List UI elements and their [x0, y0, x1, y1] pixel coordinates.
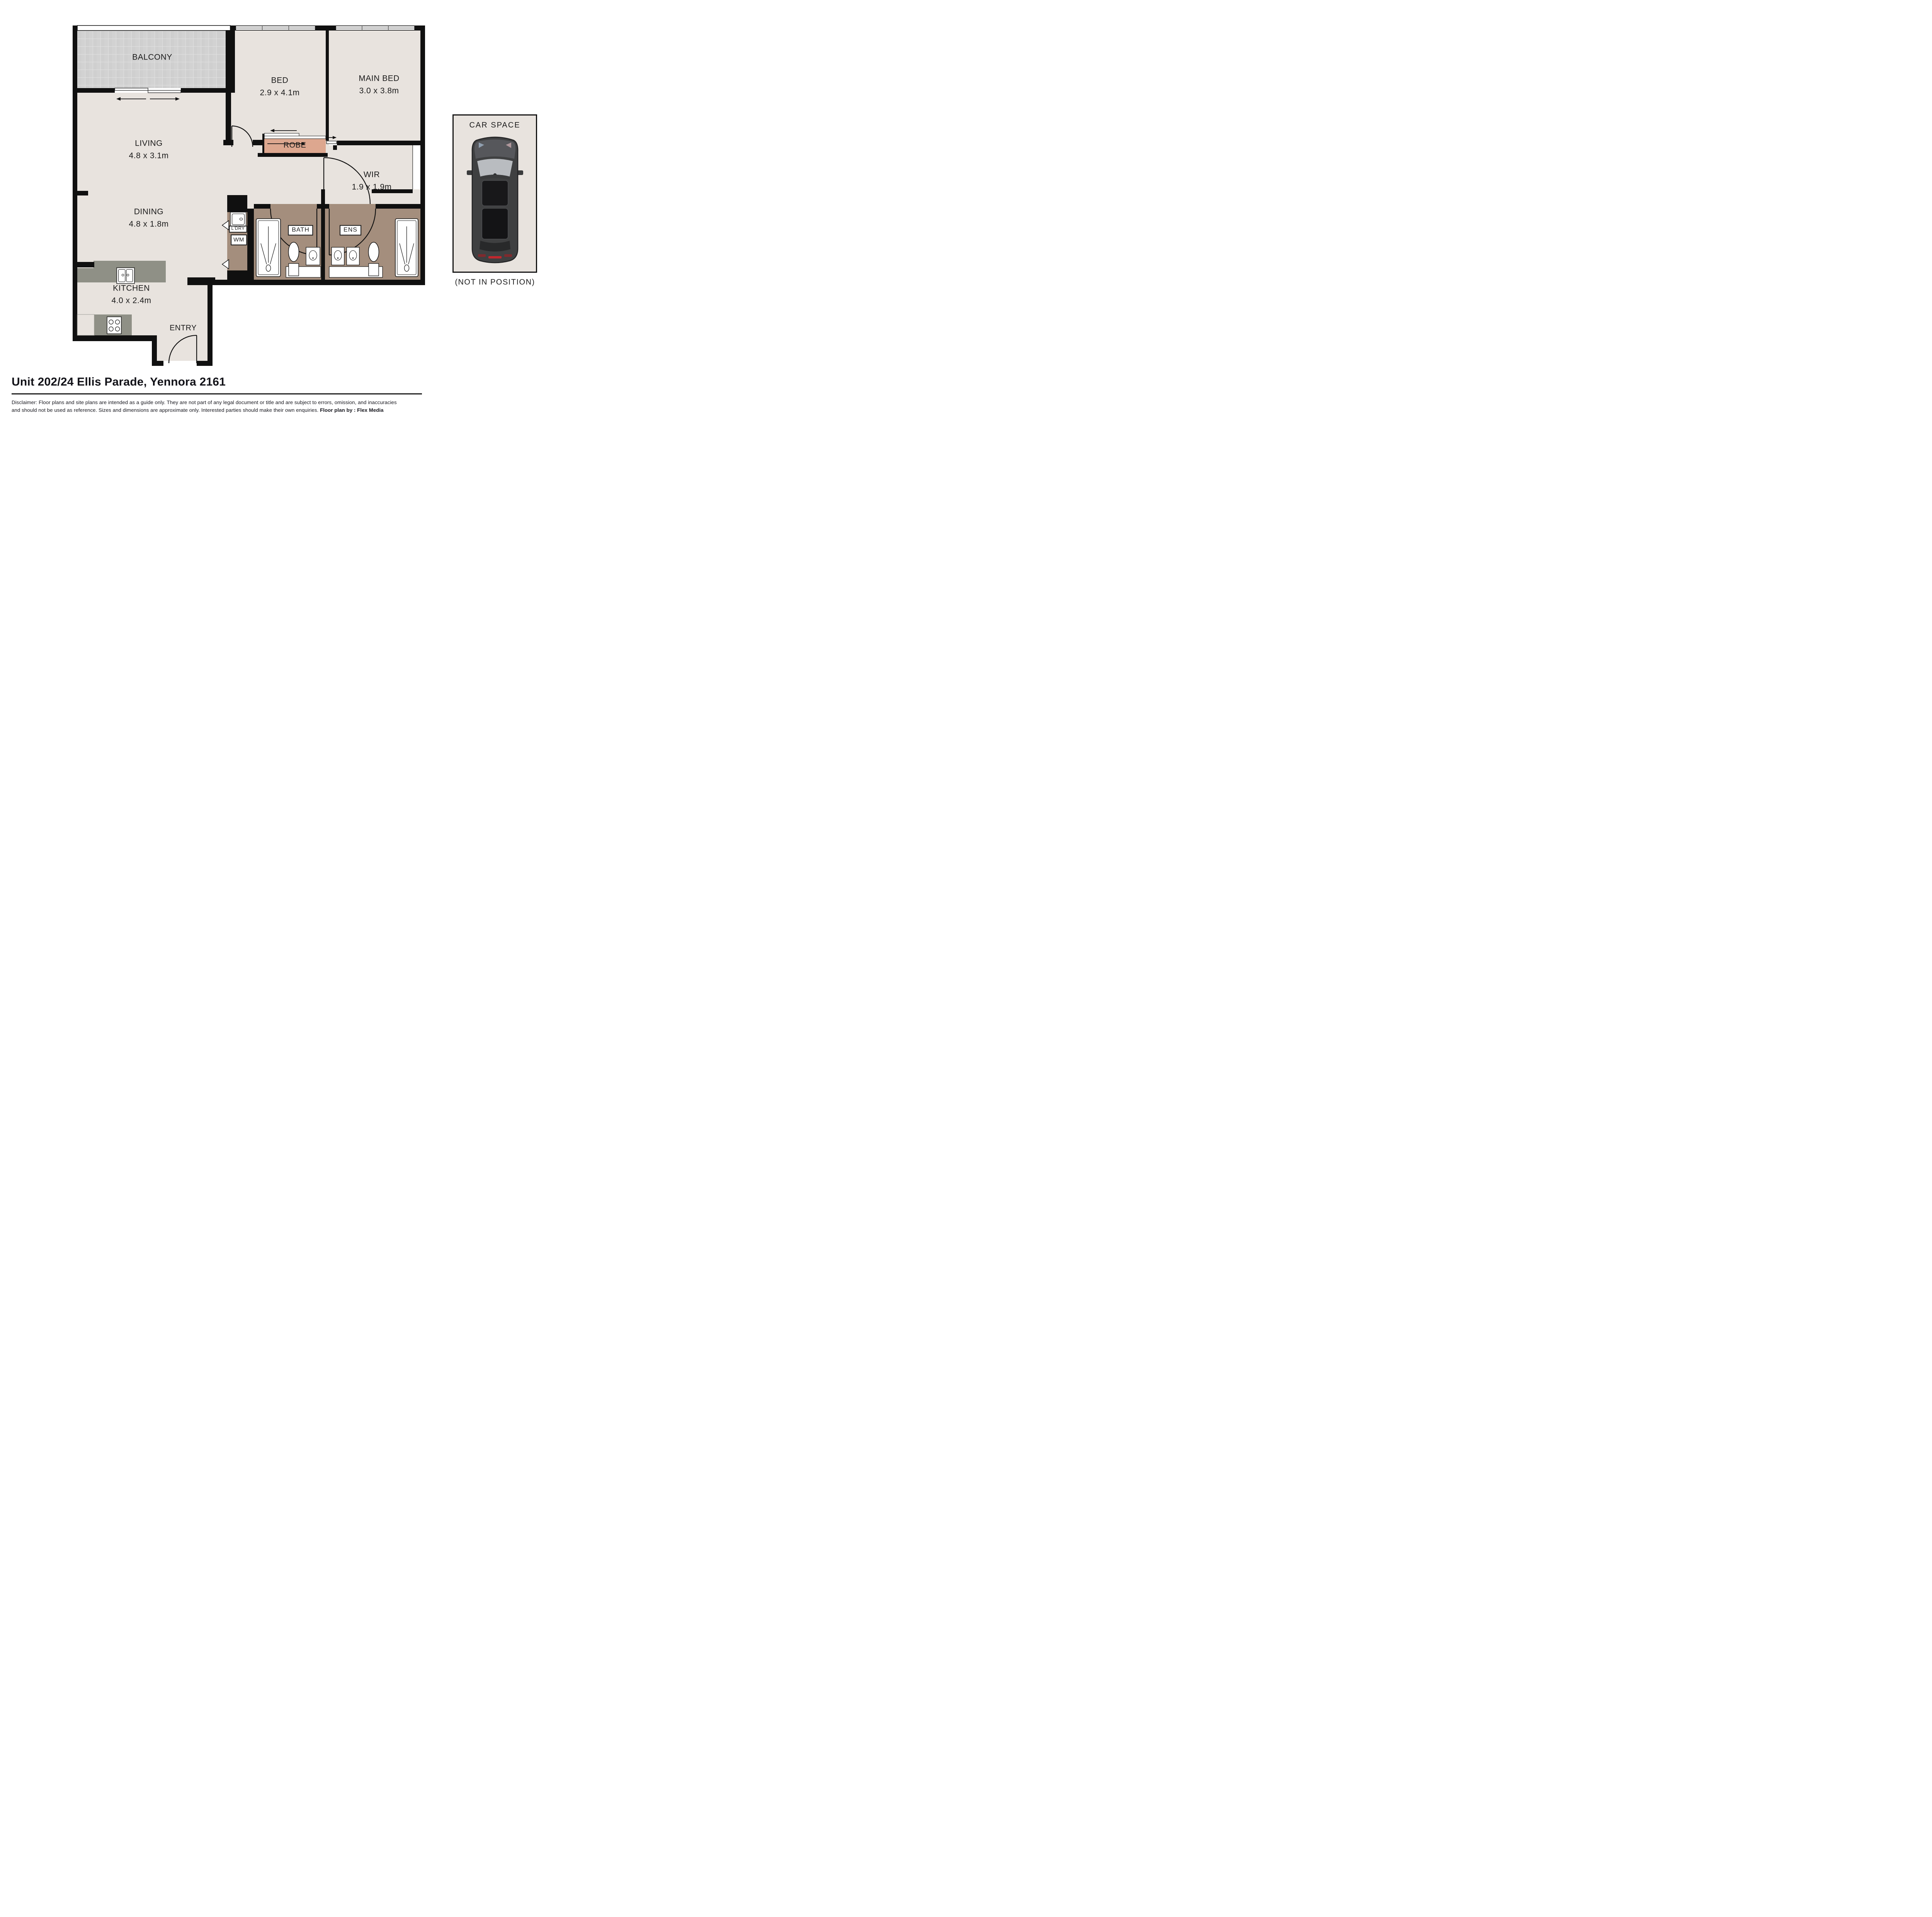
basin-icon: [347, 247, 359, 265]
void: [413, 145, 420, 189]
balcony-railing: [77, 25, 230, 31]
floorplan-document: BALCONY BED 2.9 x 4.1m MAIN BED 3.0 x 3.…: [0, 0, 597, 422]
disclaimer-line-2: and should not be used as reference. Siz…: [12, 406, 425, 414]
entry-label: ENTRY: [170, 322, 197, 334]
shower-icon: [395, 219, 418, 277]
laundry-sink-icon: [230, 212, 246, 226]
toilet-icon: [369, 242, 379, 276]
window-bed: [236, 26, 315, 30]
floorplan-credit: Floor plan by : Flex Media: [320, 407, 384, 413]
kitchen-label: KITCHEN 4.0 x 2.4m: [111, 282, 151, 307]
laundry-label: L’DRY: [229, 226, 247, 233]
bed-label: BED 2.9 x 4.1m: [260, 75, 299, 99]
disclaimer-line-1: Disclaimer: Floor plans and site plans a…: [12, 399, 425, 406]
kitchen-sink-icon: [117, 268, 134, 284]
toilet-icon: [289, 242, 299, 276]
balcony-label: BALCONY: [132, 51, 172, 63]
washing-machine-label: WM: [231, 235, 247, 245]
dining-label: DINING 4.8 x 1.8m: [129, 206, 168, 230]
basin-icon: [332, 247, 344, 265]
bath-label: BATH: [288, 225, 313, 236]
stove-icon: [107, 317, 121, 334]
disclaimer: Disclaimer: Floor plans and site plans a…: [12, 399, 425, 415]
basin-icon: [306, 247, 320, 265]
window-main-bed: [336, 26, 415, 30]
car-illustration: [466, 136, 524, 265]
car-space-title: CAR SPACE: [469, 121, 520, 130]
car-space-note: (NOT IN POSITION): [455, 278, 535, 287]
page-title: Unit 202/24 Ellis Parade, Yennora 2161: [12, 376, 226, 389]
car-top-view-icon: [467, 137, 523, 263]
living-label: LIVING 4.8 x 3.1m: [129, 138, 168, 162]
main-bed-label: MAIN BED 3.0 x 3.8m: [359, 73, 400, 97]
shower-icon: [256, 219, 281, 277]
robe-label: ROBE: [284, 139, 306, 151]
wir-label: WIR 1.9 x 1.9m: [352, 169, 391, 193]
car-space-box: CAR SPACE: [452, 114, 537, 273]
divider-line: [12, 393, 422, 394]
ens-label: ENS: [340, 225, 361, 236]
